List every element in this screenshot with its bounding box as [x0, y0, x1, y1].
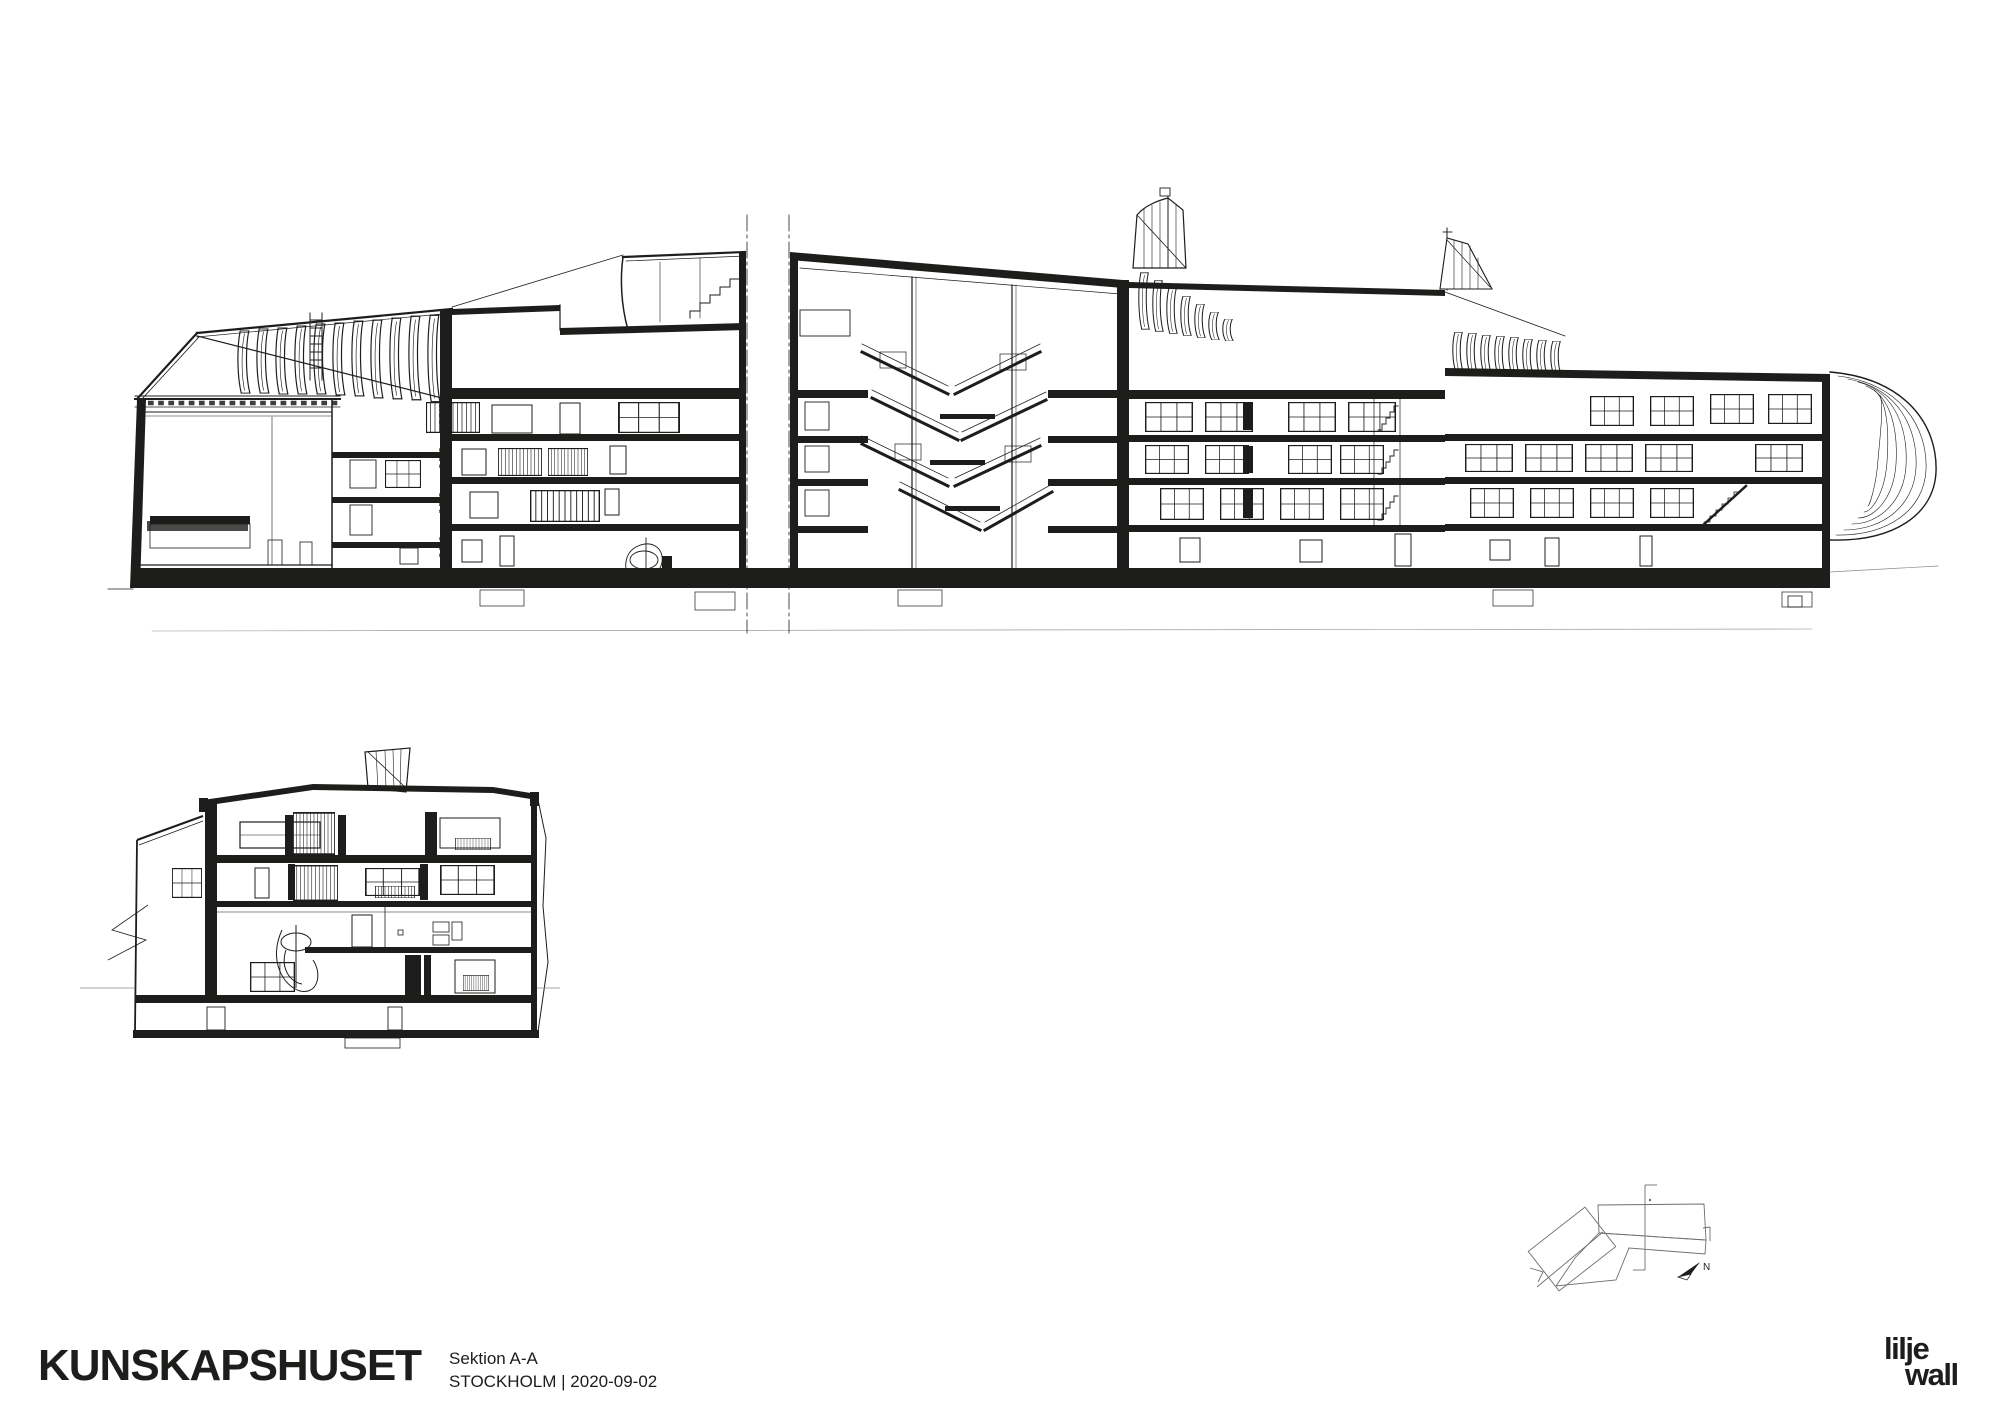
roof-fin-band-right — [1453, 333, 1561, 375]
tall-right-block — [1117, 228, 1492, 588]
left-wing — [130, 255, 623, 588]
location-date: STOCKHOLM | 2020-09-02 — [449, 1371, 657, 1394]
drawing-title: Sektion A-A — [449, 1348, 657, 1371]
curved-end-shell — [1830, 372, 1936, 540]
spiral-stair-cross — [276, 925, 317, 992]
roof-funnel-2 — [1440, 228, 1492, 290]
ground-slab — [108, 566, 1938, 631]
dimension-label: 3 545 — [437, 403, 447, 425]
atrium-stairs — [862, 344, 1052, 530]
drawing-canvas: 3 545 3 565 3 565 3 250 — [0, 0, 2000, 1414]
low-right-wing — [1445, 292, 1936, 607]
roof-fin-band-left — [238, 315, 440, 401]
north-arrow-icon: N — [1678, 1262, 1710, 1280]
key-plan: N — [1528, 1185, 1710, 1291]
wing-stair — [1702, 486, 1746, 526]
section-line-icon — [1633, 1185, 1710, 1270]
roof-funnel-1 — [1133, 188, 1186, 268]
logo-line-2: wall — [1905, 1362, 1958, 1388]
title-block: KUNSKAPSHUSET Sektion A-A STOCKHOLM | 20… — [38, 1344, 657, 1394]
middle-block: 3 545 3 565 3 565 3 250 — [427, 252, 746, 588]
internal-stair — [1374, 396, 1400, 530]
cross-section-drawing — [80, 748, 560, 1048]
long-section-drawing: 3 545 3 565 3 565 3 250 — [108, 188, 1938, 633]
dimension-label: 3 565 — [437, 447, 447, 469]
project-title: KUNSKAPSHUSET — [38, 1344, 421, 1388]
liljewall-logo: lilje wall — [1884, 1336, 1958, 1388]
drawing-subtitle: Sektion A-A STOCKHOLM | 2020-09-02 — [449, 1348, 657, 1394]
dimension-label: 3 565 — [437, 492, 447, 514]
drawing-sheet: 3 545 3 565 3 565 3 250 — [0, 0, 2000, 1414]
dimension-label: 3 250 — [437, 536, 447, 558]
north-label: N — [1703, 1262, 1710, 1273]
